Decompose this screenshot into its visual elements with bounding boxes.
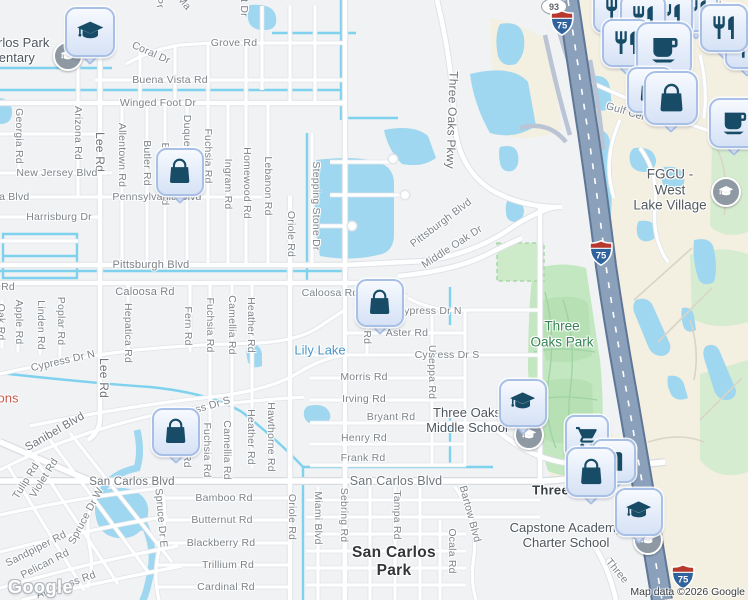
google-watermark: Google [8, 577, 73, 598]
map-canvas[interactable]: 93 75 75 75 Grove RdCoral DrBuena Vista … [0, 0, 748, 600]
map-chrome: Google Map data ©2026 Google [0, 0, 748, 600]
map-attribution: Map data ©2026 Google [630, 586, 745, 598]
